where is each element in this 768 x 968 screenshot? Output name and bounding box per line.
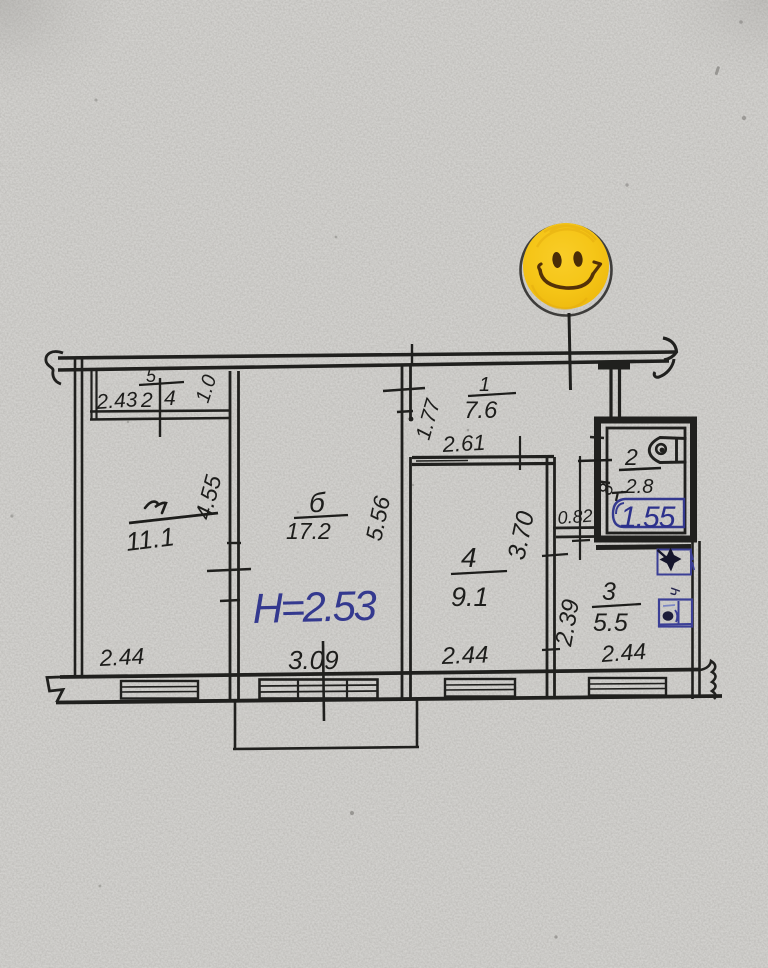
svg-text:2.44: 2.44	[600, 638, 647, 667]
svg-text:.2.8: .2.8	[620, 476, 653, 498]
svg-text:2: 2	[140, 389, 153, 412]
svg-text:2.43: 2.43	[95, 388, 139, 414]
svg-text:2.44: 2.44	[440, 641, 489, 670]
svg-text:4: 4	[164, 387, 176, 410]
svg-text:11.1: 11.1	[124, 521, 176, 557]
svg-text:5.5: 5.5	[593, 609, 628, 637]
svg-text:9.1: 9.1	[451, 582, 489, 612]
svg-text:3.09: 3.09	[288, 645, 339, 675]
svg-text:1.55: 1.55	[620, 501, 676, 534]
svg-text:17.2: 17.2	[286, 518, 331, 544]
svg-text:2.61: 2.61	[441, 430, 486, 457]
svg-text:2: 2	[624, 444, 638, 470]
svg-text:0.82: 0.82	[557, 506, 593, 528]
svg-text:4: 4	[461, 542, 477, 573]
svg-text:7.6: 7.6	[464, 397, 498, 424]
svg-text:Н=2.53: Н=2.53	[252, 582, 377, 632]
svg-text:б: б	[309, 487, 326, 518]
svg-text:3: 3	[602, 578, 616, 606]
svg-text:2.44: 2.44	[98, 643, 145, 671]
svg-text:1: 1	[479, 374, 490, 396]
